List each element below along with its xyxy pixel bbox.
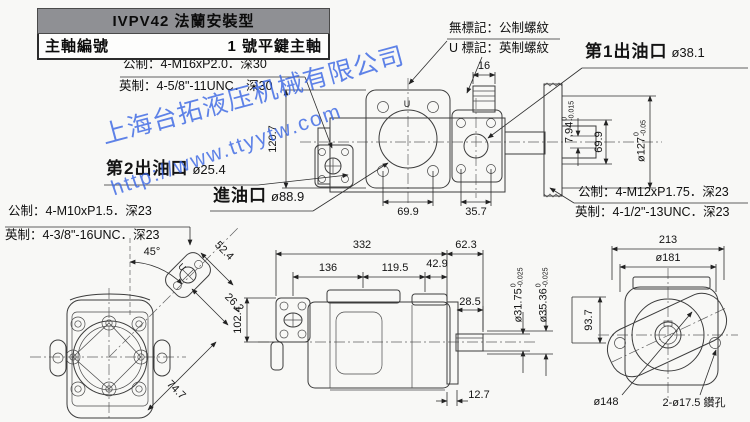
note-m10-imperial: 英制：4-3/8"-16UNC．深23 [5,229,159,241]
pump-dimension-drawing: IVPV42 法蘭安裝型 主軸編號 1 號平鍵主軸 公制：4-M16xP2.0．… [0,0,750,422]
outlet1-label: 第1出油口 ø38.1 [585,46,705,59]
title-block: IVPV42 法蘭安裝型 主軸編號 1 號平鍵主軸 [37,8,330,60]
dim-shaft-dia: ø31.75 0 -0.025 [512,267,525,322]
side-view [258,290,535,390]
note-m12-metric: 公制：4-M12xP1.75．深23 [578,186,729,198]
dim-shaft-key-dia: ø35.36 0 -0.025 [537,267,550,322]
spindle-value: 1 號平鍵主軸 [227,35,322,56]
dim-93-7: 93.7 [583,309,595,330]
tolerance: 0 -0.05 [635,120,648,136]
spindle-row: 主軸編號 1 號平鍵主軸 [37,34,330,60]
note-m12-imperial: 英制：4-1/2"-13UNC．深23 [575,206,729,218]
outlet1-name: 第1出油口 [585,46,667,58]
note-no-mark: 無標記：公制螺紋 [449,22,549,34]
spindle-label: 主軸編號 [45,35,109,56]
u-thread-mark-inlet: U [404,98,411,110]
note-m10-metric: 公制：4-M10xP1.5．深23 [8,205,152,217]
dim-213: 213 [659,234,677,246]
side-view-dimensions [244,250,606,406]
dim-35-7: 35.7 [465,206,486,218]
dim-148: ø148 [593,396,618,408]
dim-62-3: 62.3 [455,239,476,251]
dim-136: 136 [319,262,337,274]
dim-42-9: 42.9 [426,258,447,270]
dim-value: 7.94 [563,122,575,143]
dim-181: ø181 [655,252,680,264]
note-u-mark: U 標記：英制螺紋 [449,42,549,54]
dim-332: 332 [353,239,371,251]
outlet1-size: ø38.1 [671,47,704,59]
dim-value: ø31.75 [512,288,524,322]
dim-28-5: 28.5 [459,296,480,308]
inlet-label: 進油口 ø88.9 [213,190,304,203]
tolerance: 0 -0.025 [537,267,550,287]
tolerance: 0 -0.025 [512,267,525,287]
dim-16: 16 [478,60,490,72]
dim-key-width: 7.94 0 -0.015 [563,101,576,143]
model-title: IVPV42 法蘭安裝型 [37,8,330,34]
dim-pilot-dia: ø127 0 -0.05 [635,120,648,162]
dim-69-9-ports: 69.9 [397,206,418,218]
dim-12-7: 12.7 [468,389,489,401]
inlet-name: 進油口 [213,190,267,202]
dim-value: ø127 [635,137,647,162]
dim-value: ø35.36 [537,288,549,322]
dim-69-9-shaft: 69.9 [593,131,605,152]
rear-view [30,288,216,420]
drill-hole-note: 2-ø17.5 鑽孔 [663,397,726,409]
tolerance: 0 -0.015 [563,101,576,121]
end-view [598,246,738,400]
dim-119-5: 119.5 [382,262,409,274]
dim-102-4: 102.4 [232,306,244,334]
inlet-size: ø88.9 [271,191,304,203]
dim-45deg: 45° [144,246,161,258]
